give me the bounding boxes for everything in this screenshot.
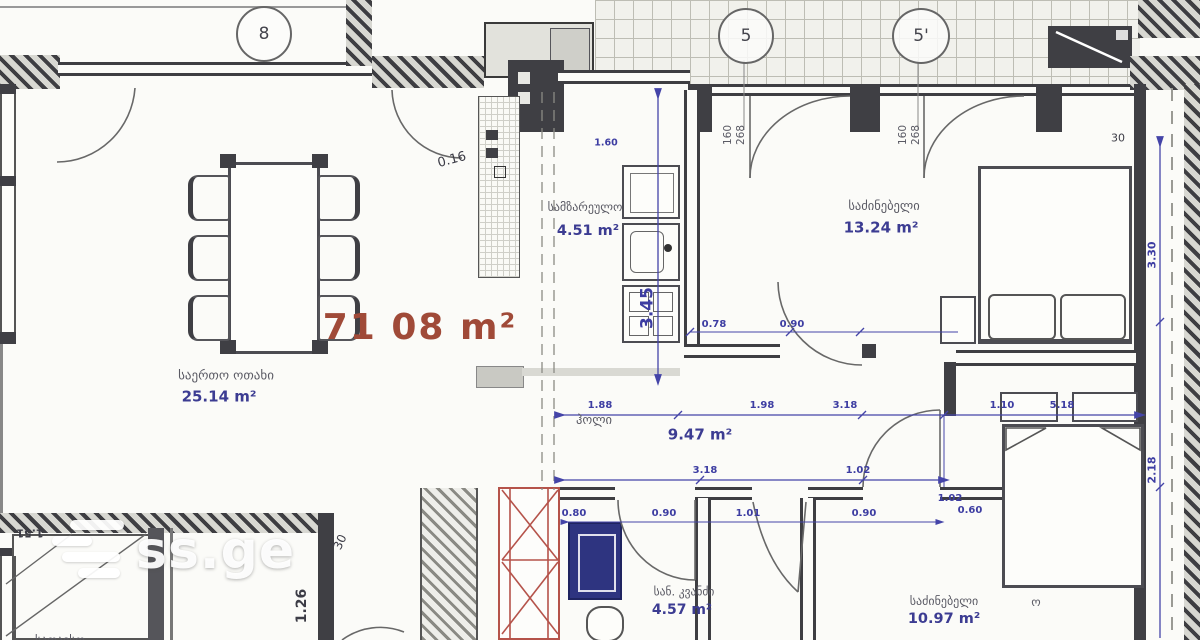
bathroom-area: 4.57 m² — [652, 603, 712, 617]
total-area-label: 71 08 m² — [323, 310, 518, 346]
bedroom2-suffix: ო — [1031, 596, 1040, 608]
door2-width-label: 160 — [898, 125, 909, 145]
axis-marker-8-label: 8 — [259, 24, 270, 44]
storage-name: სათავსო — [35, 634, 85, 640]
axis-marker-5: 5 — [718, 8, 774, 64]
living-room-name: საერთო ოთახი — [178, 370, 274, 383]
watermark: ss.ge — [52, 520, 295, 582]
dim-h1-198: 1.98 — [750, 401, 775, 411]
bedroom2-name: საძინებელი — [910, 595, 979, 607]
dim-h3-101: 1.01 — [736, 509, 761, 519]
kitchen-name: სამზარეულო — [548, 201, 623, 213]
door2-height-label: 268 — [911, 125, 922, 145]
axis-marker-5-prime: 5' — [892, 8, 950, 64]
dim-cluster-060: 0.60 — [958, 506, 983, 516]
dim-vertical-small: 1.60 — [594, 138, 617, 148]
ac-vent-line — [1056, 32, 1122, 62]
bedroom2-area: 10.97 m² — [908, 612, 980, 627]
door1-height-label: 268 — [736, 125, 747, 145]
dim-chain-078: 0.78 — [702, 320, 727, 330]
ss-ge-logo-icon — [52, 520, 124, 582]
kitchen-area: 4.51 m² — [557, 224, 619, 239]
elevator-shaft-bracing — [502, 488, 558, 638]
bedroom1-name: საძინებელი — [848, 200, 919, 213]
bed-2-pillows — [1006, 428, 1140, 450]
dim-cluster-102: 1.02 — [938, 494, 963, 504]
dim-right-30: 30 — [1111, 133, 1125, 144]
axis-marker-5-label: 5 — [741, 26, 752, 46]
floor-plan: 8 5 5' 71 08 m² საერთო ოთახი 25.14 m² სა… — [0, 0, 1200, 640]
dim-right-330: 3.30 — [1147, 241, 1158, 268]
dim-h1-518: 5.18 — [1050, 401, 1075, 411]
dim-chain-090: 0.90 — [780, 320, 805, 330]
dim-right-218: 2.18 — [1147, 456, 1158, 483]
axis-stems — [744, 60, 918, 130]
dim-h2-102: 1.02 — [846, 466, 871, 476]
center-dashed-lines — [542, 88, 1172, 638]
watermark-brand: ss.ge — [136, 521, 295, 581]
living-room-area: 25.14 m² — [182, 390, 257, 405]
door1-width-label: 160 — [723, 125, 734, 145]
hall-area: 9.47 m² — [668, 428, 732, 443]
dim-vertical-main: 3.45 — [640, 287, 657, 329]
dimension-lines — [560, 94, 1164, 638]
dim-h1-110: 1.10 — [990, 401, 1015, 411]
axis-marker-8: 8 — [236, 6, 292, 62]
dim-h1-188: 1.88 — [588, 401, 613, 411]
bathroom-name: სან. კვანძი — [654, 586, 715, 598]
hall-name: ჰოლი — [576, 414, 612, 427]
dim-h3-090a: 0.90 — [652, 509, 677, 519]
dim-h3-090b: 0.90 — [852, 509, 877, 519]
dim-h1-318: 3.18 — [833, 401, 858, 411]
dim-126: 1.26 — [295, 589, 309, 624]
bedroom1-area: 13.24 m² — [844, 221, 919, 236]
dim-h3-080: 0.80 — [562, 509, 587, 519]
dim-h2-318: 3.18 — [693, 466, 718, 476]
dim-151-flipped: 1.51 — [16, 528, 43, 539]
axis-marker-5-prime-label: 5' — [913, 26, 929, 46]
